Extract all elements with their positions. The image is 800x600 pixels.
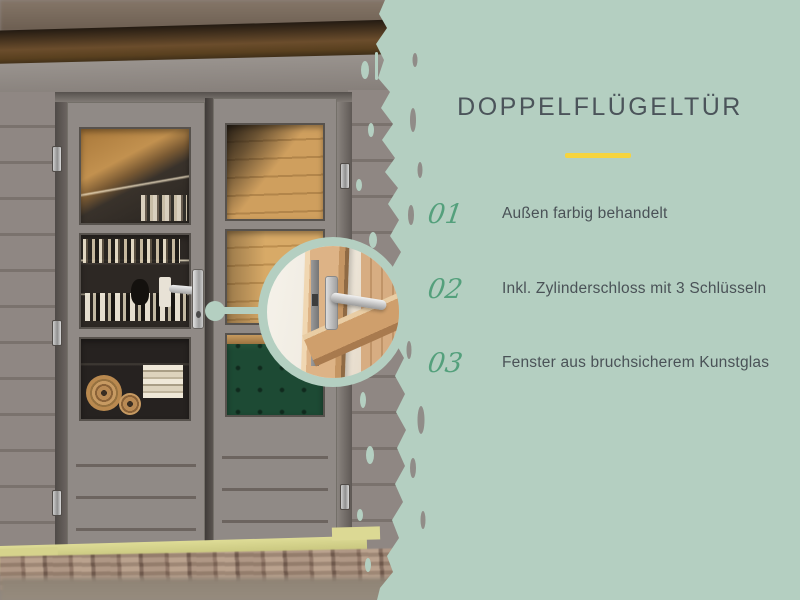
door-hinge	[52, 320, 62, 346]
interior-wood-spool	[86, 375, 122, 411]
left-door-window-middle	[79, 233, 191, 329]
door-hinge	[52, 490, 62, 516]
interior-lamp	[159, 277, 171, 307]
product-feature-banner: DOPPELFLÜGELTÜR 01 Außen farbig behandel…	[0, 0, 800, 600]
door-center-gap	[205, 98, 213, 546]
interior-wood-spool-small	[119, 393, 141, 415]
lock-detail-callout	[258, 237, 408, 387]
interior-book-stack	[143, 365, 183, 399]
interior-vase	[131, 279, 149, 305]
door-hinge	[52, 146, 62, 172]
left-door-bottom-planks	[76, 435, 196, 539]
left-door-window-top	[79, 127, 191, 225]
right-door-bottom-planks	[222, 427, 328, 531]
door-handle-plate	[192, 269, 204, 329]
green-panel-background	[452, 0, 800, 600]
left-door	[67, 102, 205, 550]
callout-anchor-dot	[205, 301, 225, 321]
wall-siding-left	[0, 92, 58, 562]
right-door-window-top	[225, 123, 325, 221]
left-door-window-bottom	[79, 337, 191, 421]
